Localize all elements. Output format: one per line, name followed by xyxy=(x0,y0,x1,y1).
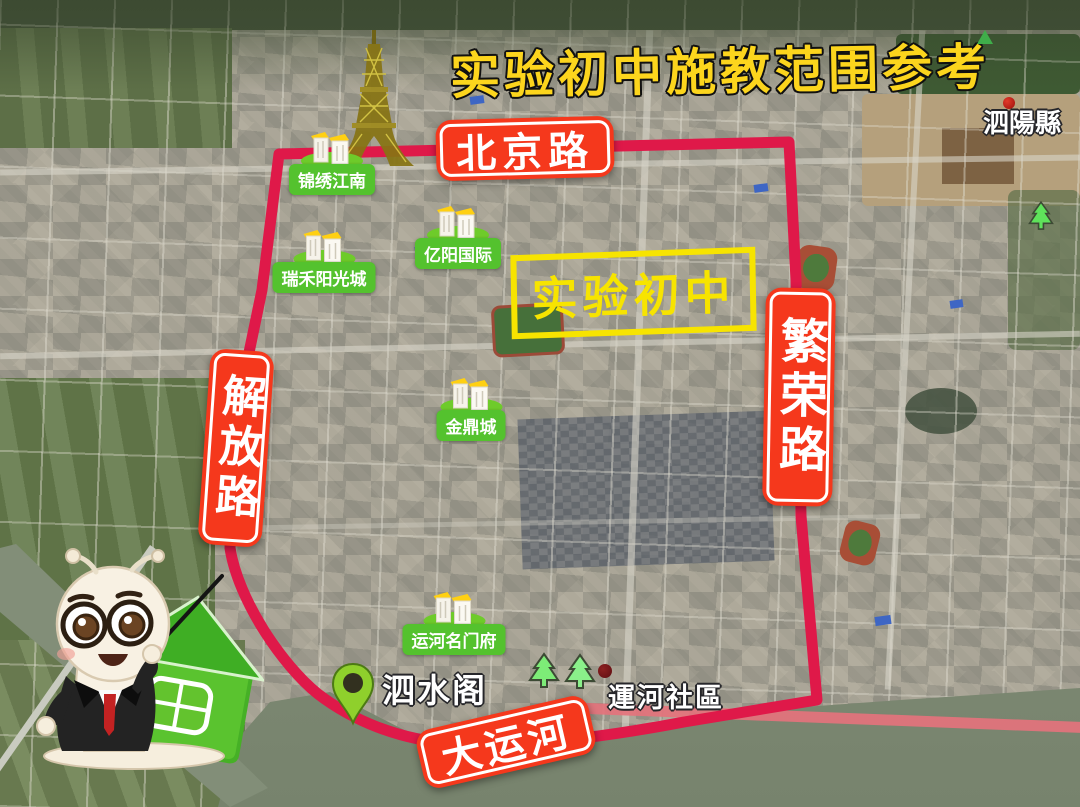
road-label-beijing: 北京路 xyxy=(435,116,615,182)
road-label-jiefang: 解放路 xyxy=(197,348,275,548)
tree-icon xyxy=(1028,200,1054,232)
community-label: 瑞禾阳光城 xyxy=(273,262,376,293)
place-label: 運河社區 xyxy=(608,676,724,715)
tree-icon xyxy=(528,652,560,690)
community-marker: 运河名门府 xyxy=(403,584,506,655)
school-highlight-box: 实验初中 xyxy=(510,247,756,340)
tree-icon xyxy=(564,653,596,691)
place-label: 泗陽縣 xyxy=(983,103,1061,140)
community-marker: 锦绣江南 xyxy=(289,124,375,195)
community-label: 运河名门府 xyxy=(403,624,506,655)
school-district-map: 实验初中施教范围参考 锦绣江南 瑞禾阳光城 亿阳国际 xyxy=(0,0,1080,807)
community-label: 金鼎城 xyxy=(437,410,506,441)
community-marker: 亿阳国际 xyxy=(415,198,501,269)
green-pin-icon xyxy=(330,662,376,726)
map-title: 实验初中施教范围参考 xyxy=(449,27,990,108)
snail-house-mascot xyxy=(14,548,264,773)
tree-icon xyxy=(977,30,993,44)
community-label: 锦绣江南 xyxy=(289,164,375,195)
community-marker: 瑞禾阳光城 xyxy=(273,222,376,293)
place-label: 泗水阁 xyxy=(382,664,487,712)
road-label-fanrong: 繁荣路 xyxy=(762,287,836,506)
community-label: 亿阳国际 xyxy=(415,238,501,269)
community-marker: 金鼎城 xyxy=(437,370,506,441)
